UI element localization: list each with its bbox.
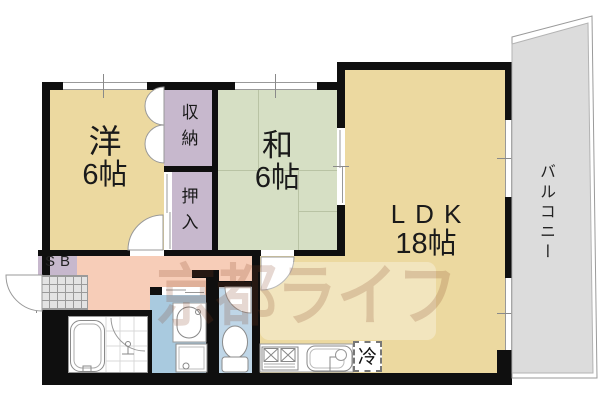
entrance-door-arc <box>6 275 42 311</box>
washing-machine <box>176 344 207 372</box>
gas-stove <box>262 347 298 370</box>
western-room-door-arc <box>128 215 163 250</box>
label-shoe-box: SB <box>38 254 77 270</box>
label-oshiire: 押入 <box>180 184 200 235</box>
floor-plan: 京都ライフ 洋 6帖 和 6帖 LDK 18帖 収納 押入 バルコニー SB 冷 <box>0 0 600 400</box>
room-ldk-size: 18帖 <box>345 229 507 260</box>
label-room-japanese: 和 6帖 <box>218 130 337 194</box>
room-japanese-size: 6帖 <box>218 163 337 194</box>
room-japanese-name: 和 <box>218 130 337 163</box>
bathtub <box>71 321 105 372</box>
watermark-text: 京都ライフ <box>156 263 458 330</box>
room-western-size: 6帖 <box>44 160 166 191</box>
label-room-western: 洋 6帖 <box>44 125 166 191</box>
label-storage: 収納 <box>180 100 200 151</box>
room-ldk-name: LDK <box>345 201 507 229</box>
fixtures-layer <box>0 0 600 400</box>
balcony <box>512 16 597 378</box>
label-room-ldk: LDK 18帖 <box>345 201 507 259</box>
room-western-name: 洋 <box>44 125 166 160</box>
label-balcony: バルコニー <box>536 138 553 288</box>
refrigerator-space: 冷 <box>353 341 382 372</box>
kitchen-sink <box>307 346 352 371</box>
label-refrigerator: 冷 <box>358 347 377 368</box>
